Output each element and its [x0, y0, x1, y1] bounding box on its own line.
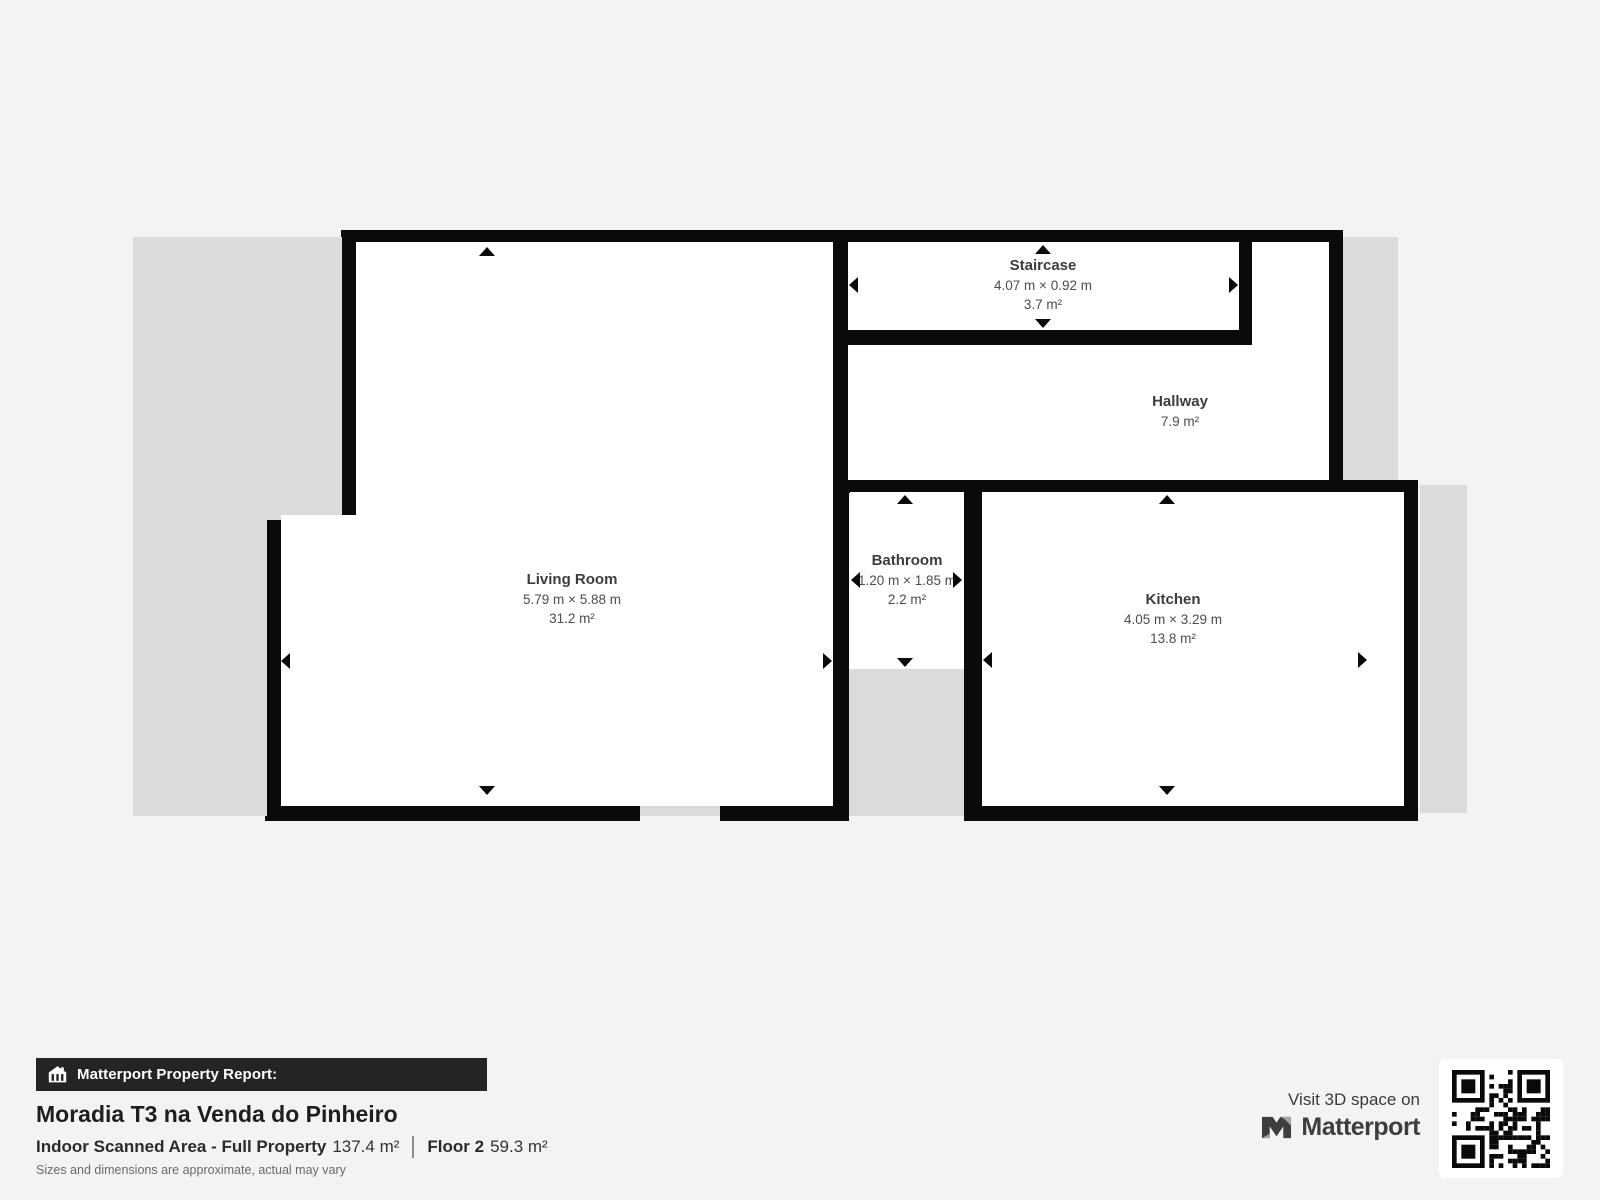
- wall: [341, 230, 357, 530]
- indoor-area-value: 137.4 m²: [332, 1137, 399, 1157]
- room-floor: [1252, 242, 1329, 345]
- void-area: [133, 237, 342, 520]
- room-dimensions: 4.07 m × 0.92 m: [994, 276, 1092, 295]
- wall: [833, 330, 1253, 345]
- room-floor: [848, 345, 1329, 480]
- floorplan-canvas: Staircase 4.07 m × 0.92 m 3.7 m² Hallway…: [0, 0, 1600, 1200]
- dimension-arrow: [479, 786, 495, 795]
- room-dimensions: 4.05 m × 3.29 m: [1124, 610, 1222, 629]
- room-dimensions: 1.20 m × 1.85 m: [858, 571, 956, 590]
- divider: [412, 1136, 414, 1158]
- wall: [964, 806, 1418, 821]
- dimension-arrow: [479, 247, 495, 256]
- dimension-arrow: [1358, 652, 1367, 668]
- room-name: Bathroom: [858, 551, 956, 571]
- visit-3d-text: Visit 3D space on: [1288, 1090, 1420, 1110]
- void-area: [1343, 237, 1398, 480]
- room-name: Living Room: [523, 570, 621, 590]
- wall: [733, 806, 849, 821]
- room-area: 7.9 m²: [1152, 412, 1208, 431]
- matterport-logo-icon: [1260, 1112, 1293, 1143]
- void-area: [849, 669, 964, 816]
- void-area: [1420, 485, 1467, 813]
- wall: [964, 480, 982, 821]
- room-label-hallway: Hallway 7.9 m²: [1152, 392, 1208, 431]
- wall: [833, 230, 849, 821]
- room-area: 31.2 m²: [523, 609, 621, 628]
- room-label-bathroom: Bathroom 1.20 m × 1.85 m 2.2 m²: [858, 551, 956, 609]
- room-label-staircase: Staircase 4.07 m × 0.92 m 3.7 m²: [994, 256, 1092, 314]
- matterport-logo: Matterport: [1260, 1112, 1420, 1143]
- room-label-kitchen: Kitchen 4.05 m × 3.29 m 13.8 m²: [1124, 590, 1222, 648]
- room-area: 3.7 m²: [994, 295, 1092, 314]
- property-title: Moradia T3 na Venda do Pinheiro: [36, 1101, 398, 1128]
- room-name: Staircase: [994, 256, 1092, 276]
- room-area: 2.2 m²: [858, 590, 956, 609]
- house-icon: [48, 1065, 67, 1084]
- indoor-area-label: Indoor Scanned Area - Full Property: [36, 1137, 326, 1157]
- qr-code: [1439, 1059, 1563, 1178]
- report-badge-bar: Matterport Property Report:: [36, 1058, 487, 1091]
- disclaimer-text: Sizes and dimensions are approximate, ac…: [36, 1163, 346, 1177]
- room-floor: [982, 492, 1404, 806]
- area-summary: Indoor Scanned Area - Full Property 137.…: [36, 1136, 548, 1158]
- dimension-arrow: [1229, 277, 1238, 293]
- dimension-arrow: [1035, 245, 1051, 254]
- report-badge-label: Matterport Property Report:: [77, 1066, 277, 1083]
- dimension-arrow: [897, 495, 913, 504]
- room-label-living-room: Living Room 5.79 m × 5.88 m 31.2 m²: [523, 570, 621, 628]
- room-name: Hallway: [1152, 392, 1208, 412]
- dimension-arrow: [1159, 495, 1175, 504]
- dimension-arrow: [1159, 786, 1175, 795]
- wall: [1239, 242, 1253, 345]
- wall: [1329, 230, 1343, 480]
- wall: [265, 806, 627, 821]
- matterport-wordmark: Matterport: [1301, 1113, 1420, 1142]
- room-area: 13.8 m²: [1124, 629, 1222, 648]
- dimension-arrow: [849, 277, 858, 293]
- floor-label: Floor 2: [427, 1137, 484, 1157]
- dimension-arrow: [983, 652, 992, 668]
- void-area: [133, 515, 267, 816]
- dimension-arrow: [851, 572, 860, 588]
- floor-value: 59.3 m²: [490, 1137, 548, 1157]
- dimension-arrow: [897, 658, 913, 667]
- room-floor: [356, 242, 833, 530]
- qr-code-image: [1452, 1070, 1550, 1168]
- dimension-arrow: [1035, 319, 1051, 328]
- room-name: Kitchen: [1124, 590, 1222, 610]
- room-floor: [281, 515, 833, 806]
- dimension-arrow: [281, 653, 290, 669]
- room-dimensions: 5.79 m × 5.88 m: [523, 590, 621, 609]
- wall: [265, 515, 281, 821]
- dimension-arrow: [953, 572, 962, 588]
- dimension-arrow: [823, 653, 832, 669]
